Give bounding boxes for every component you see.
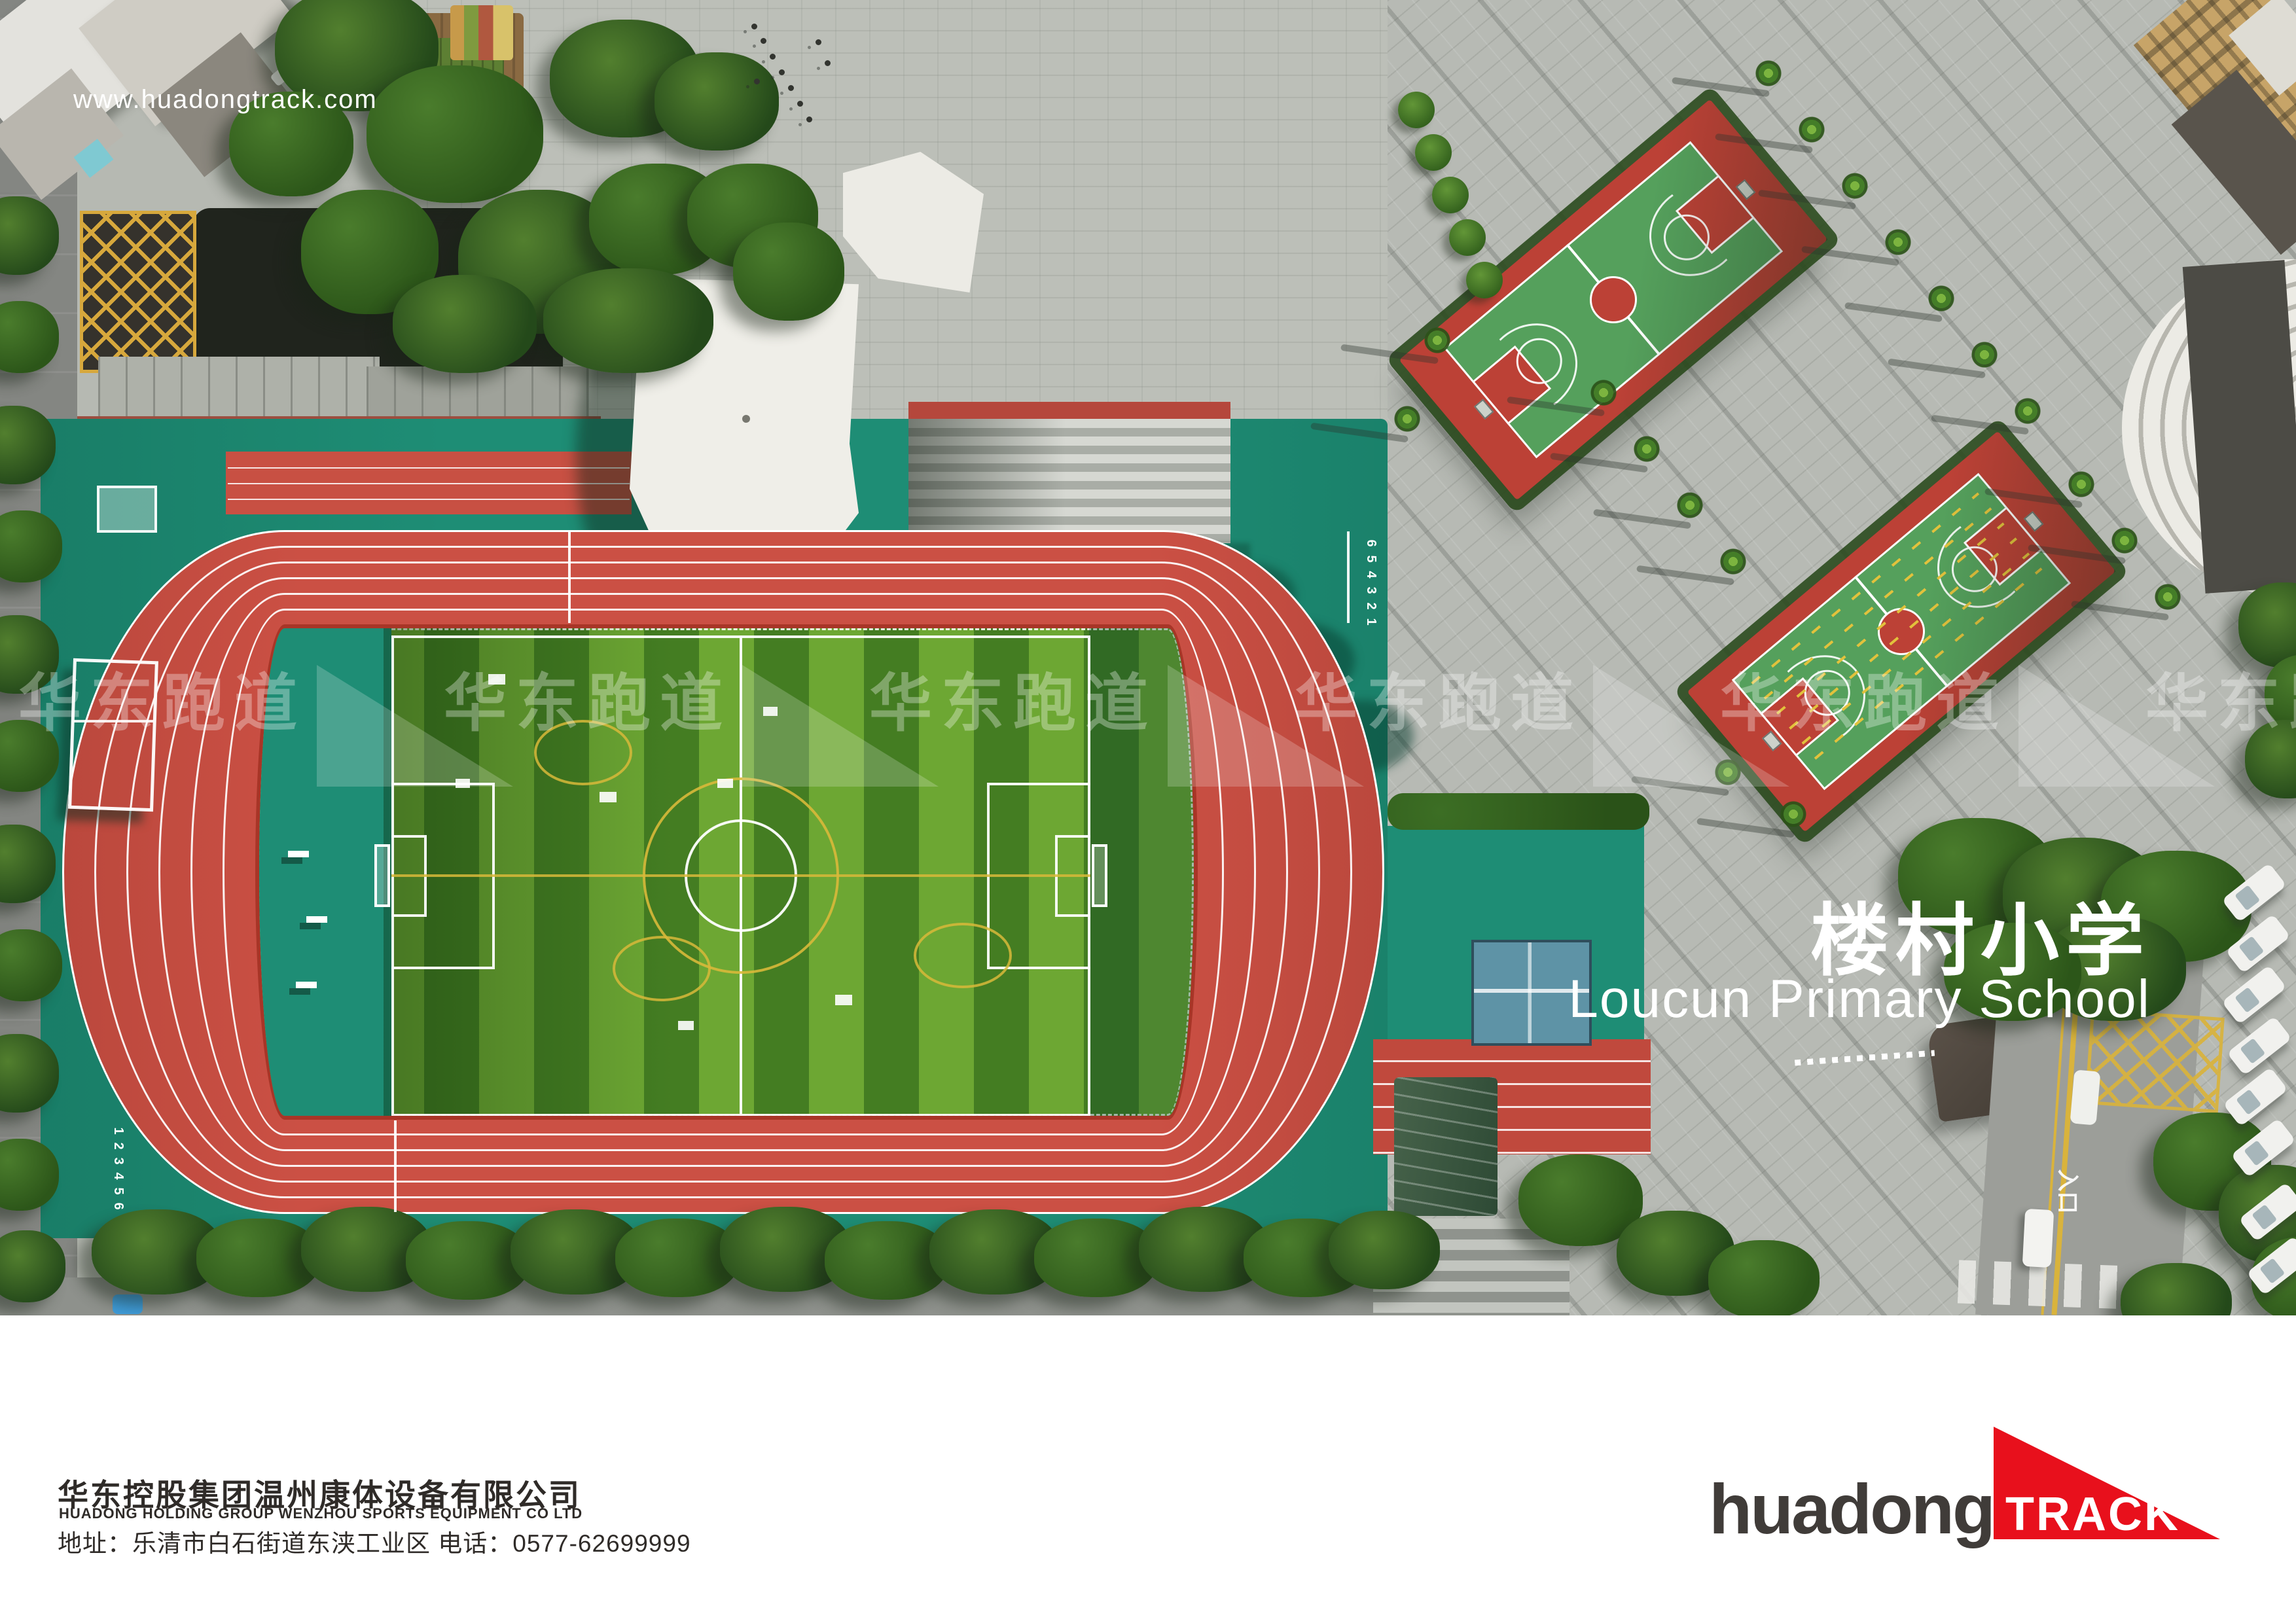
bleacher-shadow: [908, 419, 1066, 543]
tree-cluster: [543, 268, 713, 373]
pedestrian: [754, 79, 760, 84]
tree-cluster: [0, 1230, 65, 1302]
finish-lane-number: 1: [1363, 613, 1379, 630]
mini-goal: [600, 792, 617, 802]
stand-frame: [97, 486, 157, 533]
finish-lane-number: 2: [1363, 597, 1379, 615]
mini-goal: [488, 674, 505, 685]
retaining-wall: [367, 366, 589, 420]
palm-tree: [2067, 470, 2096, 499]
hedge-row: [1388, 793, 1649, 830]
shrub: [1432, 177, 1469, 213]
road-car: [2070, 1069, 2101, 1125]
strip-line: [228, 467, 630, 469]
palm-tree: [1713, 758, 1742, 787]
finish-lane-number: 6: [1363, 535, 1379, 552]
hurdle: [306, 916, 327, 923]
shrub: [1398, 92, 1435, 128]
pedestrian: [797, 101, 803, 107]
soccer-goal: [374, 844, 390, 907]
footer-company-name-en: HUADONG HOLDING GROUP WENZHOU SPORTS EQU…: [59, 1505, 583, 1522]
pedestrian: [751, 24, 757, 29]
palm-tree: [1393, 404, 1422, 433]
pedestrian: [806, 116, 812, 122]
palm-tree: [1632, 435, 1661, 463]
futsal-line: [391, 874, 1090, 877]
zebra-crossing: [1958, 1260, 2132, 1309]
tree-cluster: [733, 223, 844, 321]
start-line: [394, 1120, 397, 1212]
website-watermark: www.huadongtrack.com: [73, 85, 378, 115]
hurdle: [288, 851, 309, 857]
mini-goal: [678, 1021, 694, 1030]
strip-line: [228, 499, 630, 500]
palm-tree: [1840, 171, 1869, 200]
start-lane-number: 6: [111, 1198, 126, 1215]
mini-goal: [456, 779, 470, 788]
palm-tree: [1589, 378, 1618, 407]
palm-tree: [1927, 284, 1956, 313]
mini-goal: [763, 707, 778, 716]
palm-tree: [2153, 582, 2182, 611]
palm-tree: [2110, 526, 2139, 555]
aerial-photo: 654321 123456: [0, 0, 2296, 1315]
retaining-wall: [98, 357, 380, 419]
shrub: [1415, 134, 1452, 171]
pedestrian: [825, 60, 831, 66]
finish-lane-number: 4: [1363, 566, 1379, 583]
yellow-hatch-zone: [80, 211, 196, 373]
strip-line: [228, 483, 630, 484]
road-car: [2022, 1209, 2054, 1268]
futsal-ellipse: [534, 720, 632, 785]
tent-pole: [742, 415, 750, 423]
pedestrian: [761, 38, 766, 44]
brochure-page: 654321 123456: [0, 0, 2296, 1623]
flower-bed: [450, 5, 513, 60]
bleacher-cap: [908, 402, 1230, 419]
hurdle: [296, 982, 317, 988]
d-zone-teal: [259, 628, 391, 1120]
finish-lane-number: 3: [1363, 582, 1379, 599]
tree-cluster: [655, 52, 779, 151]
futsal-ellipse: [914, 923, 1012, 988]
gym-frame-bar: [73, 720, 153, 722]
tree-cluster: [367, 65, 543, 203]
soccer-goal: [1092, 844, 1107, 907]
palm-tree: [2013, 397, 2042, 425]
palm-tree: [1970, 340, 1999, 369]
footer-contact-line: 地址：乐清市白石街道东浃工业区 电话：0577-62699999: [58, 1524, 691, 1559]
pedestrian: [779, 69, 785, 75]
palm-tree: [1754, 59, 1783, 88]
start-line: [568, 531, 571, 623]
finish-line: [1347, 531, 1350, 623]
logo-wordmark: huadong: [1709, 1474, 1994, 1544]
mini-goal: [717, 779, 733, 788]
shrub: [1466, 262, 1503, 298]
palm-tree: [1719, 547, 1748, 576]
palm-tree: [1676, 491, 1704, 520]
pedestrian: [770, 54, 776, 60]
tree-cluster: [1329, 1211, 1440, 1289]
palm-tree: [1423, 326, 1452, 355]
blue-vehicle: [113, 1294, 143, 1314]
pedestrian: [788, 85, 794, 91]
page-subtitle: Loucun Primary School: [1568, 969, 2151, 1030]
infield: [255, 624, 1198, 1120]
palm-tree: [1884, 228, 1912, 257]
palm-tree: [1779, 800, 1808, 829]
stage-tarp: [1394, 1077, 1498, 1216]
pedestrian: [816, 39, 821, 45]
entrance-road-label: 入口: [2054, 1169, 2086, 1214]
shrub: [1449, 219, 1486, 256]
gym-frame: [68, 658, 158, 811]
futsal-ellipse: [613, 936, 711, 1001]
logo-accent-text: TRACK: [2005, 1491, 2180, 1538]
finish-lane-number: 5: [1363, 550, 1379, 567]
tree-cluster: [393, 275, 537, 373]
mini-goal: [835, 995, 852, 1005]
palm-tree: [1797, 115, 1826, 144]
tree-cluster: [1708, 1240, 1820, 1315]
